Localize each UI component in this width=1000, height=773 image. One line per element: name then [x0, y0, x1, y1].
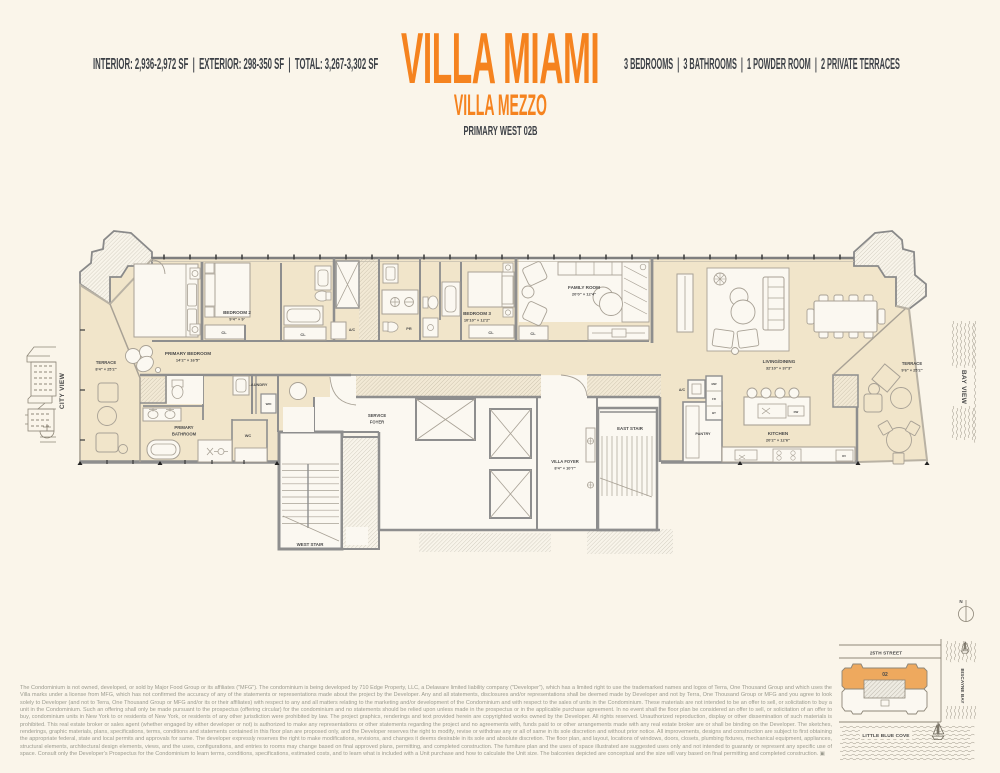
svg-text:BATHROOM: BATHROOM: [172, 432, 197, 437]
svg-text:DW: DW: [794, 410, 799, 414]
svg-text:MW: MW: [712, 382, 717, 386]
svg-text:W/D: W/D: [266, 402, 273, 406]
svg-text:25TH STREET: 25TH STREET: [870, 651, 902, 656]
svg-text:14’2” × 16’5”: 14’2” × 16’5”: [176, 358, 200, 363]
svg-text:OV: OV: [842, 454, 846, 458]
svg-text:VILLA FOYER: VILLA FOYER: [551, 459, 579, 464]
svg-text:PANTRY: PANTRY: [695, 432, 711, 436]
svg-text:LIVING/DINING: LIVING/DINING: [763, 359, 796, 364]
svg-text:20’2” × 12’6”: 20’2” × 12’6”: [766, 438, 790, 443]
svg-text:8’4” × 25’2”: 8’4” × 25’2”: [95, 367, 116, 372]
svg-text:CL: CL: [530, 331, 536, 336]
svg-text:WC: WC: [245, 433, 252, 438]
svg-text:A/C: A/C: [679, 388, 686, 392]
svg-text:CL: CL: [488, 330, 494, 335]
svg-text:FR: FR: [712, 397, 716, 401]
svg-text:20’0” × 12’4”: 20’0” × 12’4”: [572, 292, 596, 297]
svg-text:BISCAYNE BAY: BISCAYNE BAY: [960, 668, 965, 703]
svg-text:PRIMARY: PRIMARY: [174, 425, 193, 430]
svg-text:32’10” × 37’3”: 32’10” × 37’3”: [766, 366, 792, 371]
svg-text:BEDROOM 3: BEDROOM 3: [463, 311, 491, 316]
svg-text:CL: CL: [221, 330, 227, 335]
svg-text:WEST STAIR: WEST STAIR: [297, 542, 325, 547]
svg-text:CL: CL: [300, 332, 306, 337]
svg-text:BT: BT: [712, 411, 716, 415]
svg-text:LAUNDRY: LAUNDRY: [249, 382, 268, 387]
svg-text:PR: PR: [406, 326, 412, 331]
svg-text:BAY VIEW: BAY VIEW: [960, 370, 967, 405]
svg-text:FAMILY ROOM: FAMILY ROOM: [568, 285, 600, 290]
svg-text:PRIMARY BEDROOM: PRIMARY BEDROOM: [165, 351, 211, 356]
svg-text:KITCHEN: KITCHEN: [768, 431, 789, 436]
svg-text:10’10” × 12’2”: 10’10” × 12’2”: [464, 318, 490, 323]
svg-text:BEDROOM 2: BEDROOM 2: [223, 310, 251, 315]
svg-text:TERRACE: TERRACE: [96, 360, 116, 365]
svg-text:8’4” × 10’7”: 8’4” × 10’7”: [554, 466, 575, 471]
svg-text:9’4” × 9’: 9’4” × 9’: [229, 317, 244, 322]
svg-text:FOYER: FOYER: [370, 420, 384, 425]
svg-text:LITTLE BLUE COVE: LITTLE BLUE COVE: [862, 733, 910, 739]
svg-text:CITY VIEW: CITY VIEW: [59, 372, 66, 409]
svg-text:EAST STAIR: EAST STAIR: [617, 426, 644, 431]
svg-text:SERVICE: SERVICE: [368, 413, 387, 418]
svg-text:TERRACE: TERRACE: [902, 361, 922, 366]
svg-text:A/C: A/C: [349, 328, 356, 332]
svg-text:N: N: [959, 599, 962, 604]
svg-text:02: 02: [882, 672, 888, 678]
svg-text:9’6” × 25’2”: 9’6” × 25’2”: [901, 368, 922, 373]
